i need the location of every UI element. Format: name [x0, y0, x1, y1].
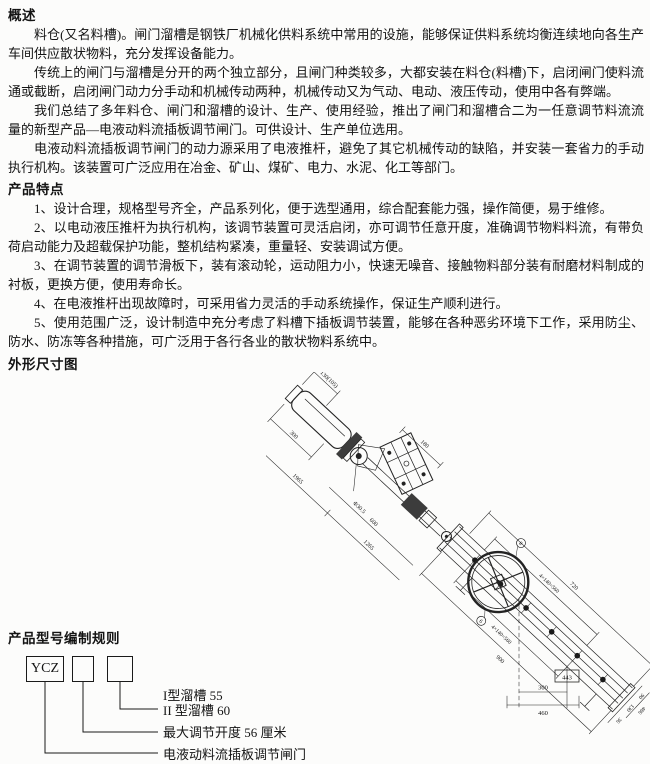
model-label-type2: II 型溜槽 60 — [163, 701, 230, 720]
chute-frame — [427, 524, 635, 723]
dim-560-bottom: 4×140=560 — [489, 624, 512, 646]
dim-900: 900 — [494, 655, 505, 666]
model-label-opening: 最大调节开度 56 厘米 — [163, 723, 287, 742]
model-code-box: YCZ — [26, 656, 64, 682]
feature-item: 1、设计合理，规格型号齐全，产品系列化，便于选型通用，综合配套能力强，操作简便，… — [8, 199, 644, 218]
feature-item: 4、在电液推杆出现故障时，可采用省力灵活的手动系统操作，保证生产顺利进行。 — [8, 294, 644, 313]
dim-486: 486 — [636, 705, 646, 715]
model-rules-heading: 产品型号编制规则 — [8, 629, 120, 648]
handwheel — [456, 540, 541, 625]
push-rod — [360, 455, 456, 546]
overview-heading: 概述 — [8, 6, 644, 25]
overview-paragraphs: 料仓(又名料槽)。闸门溜槽是钢铁厂机械化供料系统中常用的设施，能够保证供料系统均… — [8, 25, 644, 177]
dim-300-top: 300 — [288, 430, 299, 441]
dim-1965: 1965 — [291, 473, 304, 486]
dim-180: 180 — [419, 439, 430, 450]
dim-460: 460 — [538, 710, 548, 717]
dim-600: 600 — [368, 517, 379, 528]
model-digit-box-opening — [72, 656, 94, 682]
text-column: 概述 料仓(又名料槽)。闸门溜槽是钢铁厂机械化供料系统中常用的设施，能够保证供料… — [8, 6, 644, 351]
feature-list: 1、设计合理，规格型号齐全，产品系列化，便于选型通用，综合配套能力强，操作简便，… — [8, 199, 644, 351]
overview-paragraph: 电液动料流插板调节闸门的动力源采用了电液推杆，避免了其它机械传动的缺陷，并安装一… — [8, 139, 644, 177]
dim-phi-30-5: Φ30.5 — [351, 501, 366, 516]
dim-300-bottom: 300 — [538, 685, 548, 692]
overview-paragraph: 传统上的闸门与溜槽是分开的两个独立部分，且闸门种类较多，大都安装在料仓(料槽)下… — [8, 63, 644, 101]
feature-item: 2、以电动液压推杆为执行机构，该调节装置可灵活启闭，亦可调节任意开度，准确调节物… — [8, 218, 644, 256]
hydraulic-cylinder — [281, 381, 366, 463]
dim-36: 36 — [614, 716, 622, 724]
overview-paragraph: 料仓(又名料槽)。闸门溜槽是钢铁厂机械化供料系统中常用的设施，能够保证供料系统均… — [8, 25, 644, 63]
catalog-page: 概述 料仓(又名料槽)。闸门溜槽是钢铁厂机械化供料系统中常用的设施，能够保证供料… — [0, 0, 650, 758]
feature-item: 3、在调节装置的调节滑板下，装有滚动轮，运动阻力小，快速无噪音、接触物料部分装有… — [8, 256, 644, 294]
model-label-product-name: 电液动料流插板调节闸门 — [163, 745, 306, 764]
dim-443-boxed: 443 — [562, 675, 572, 682]
features-heading: 产品特点 — [8, 180, 644, 199]
model-numbering-diagram: YCZ I型溜槽 55 II 型溜槽 60 最大调节开度 56 厘米 电液动料流… — [8, 648, 448, 758]
dimension-drawing-heading: 外形尺寸图 — [8, 355, 78, 374]
dim-130-105: 130(105) — [318, 372, 339, 390]
model-digit-box-chute-type — [107, 656, 133, 682]
dim-130-right: 130 — [625, 703, 635, 713]
dim-720: 720 — [568, 581, 579, 592]
overview-paragraph: 我们总结了多年料仓、闸门和溜槽的设计、生产、使用经验，推出了闸门和溜槽合二为一任… — [8, 101, 644, 139]
feature-item: 5、使用范围广泛，设计制造中充分考虑了料槽下插板调节装置，能够在各种恶劣环境下工… — [8, 313, 644, 351]
dim-1265: 1265 — [362, 539, 375, 552]
